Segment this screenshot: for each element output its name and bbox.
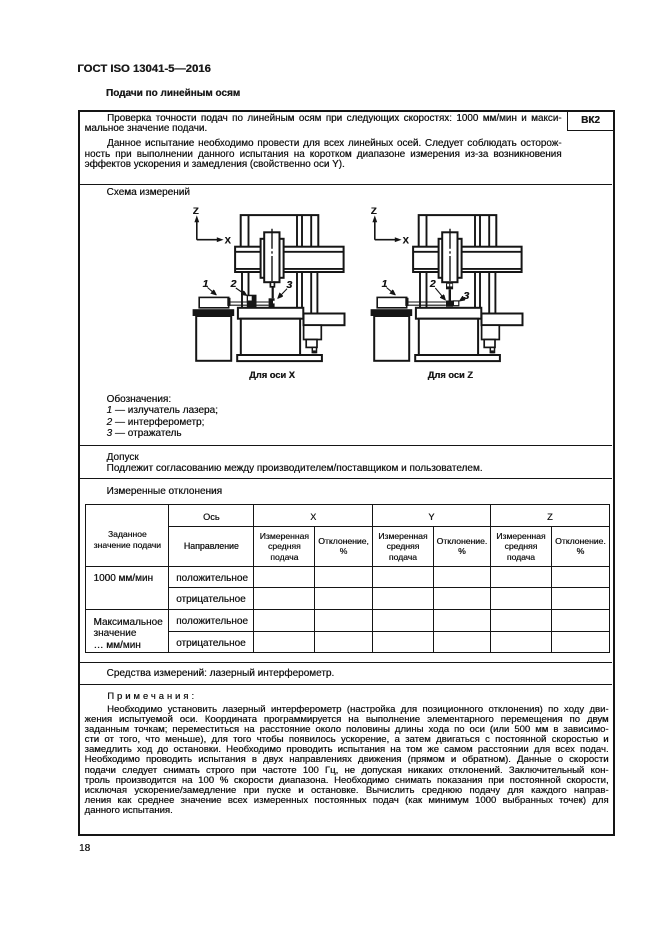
- svg-text:2: 2: [429, 278, 436, 290]
- svg-text:2: 2: [230, 278, 237, 290]
- svg-text:3: 3: [463, 290, 469, 302]
